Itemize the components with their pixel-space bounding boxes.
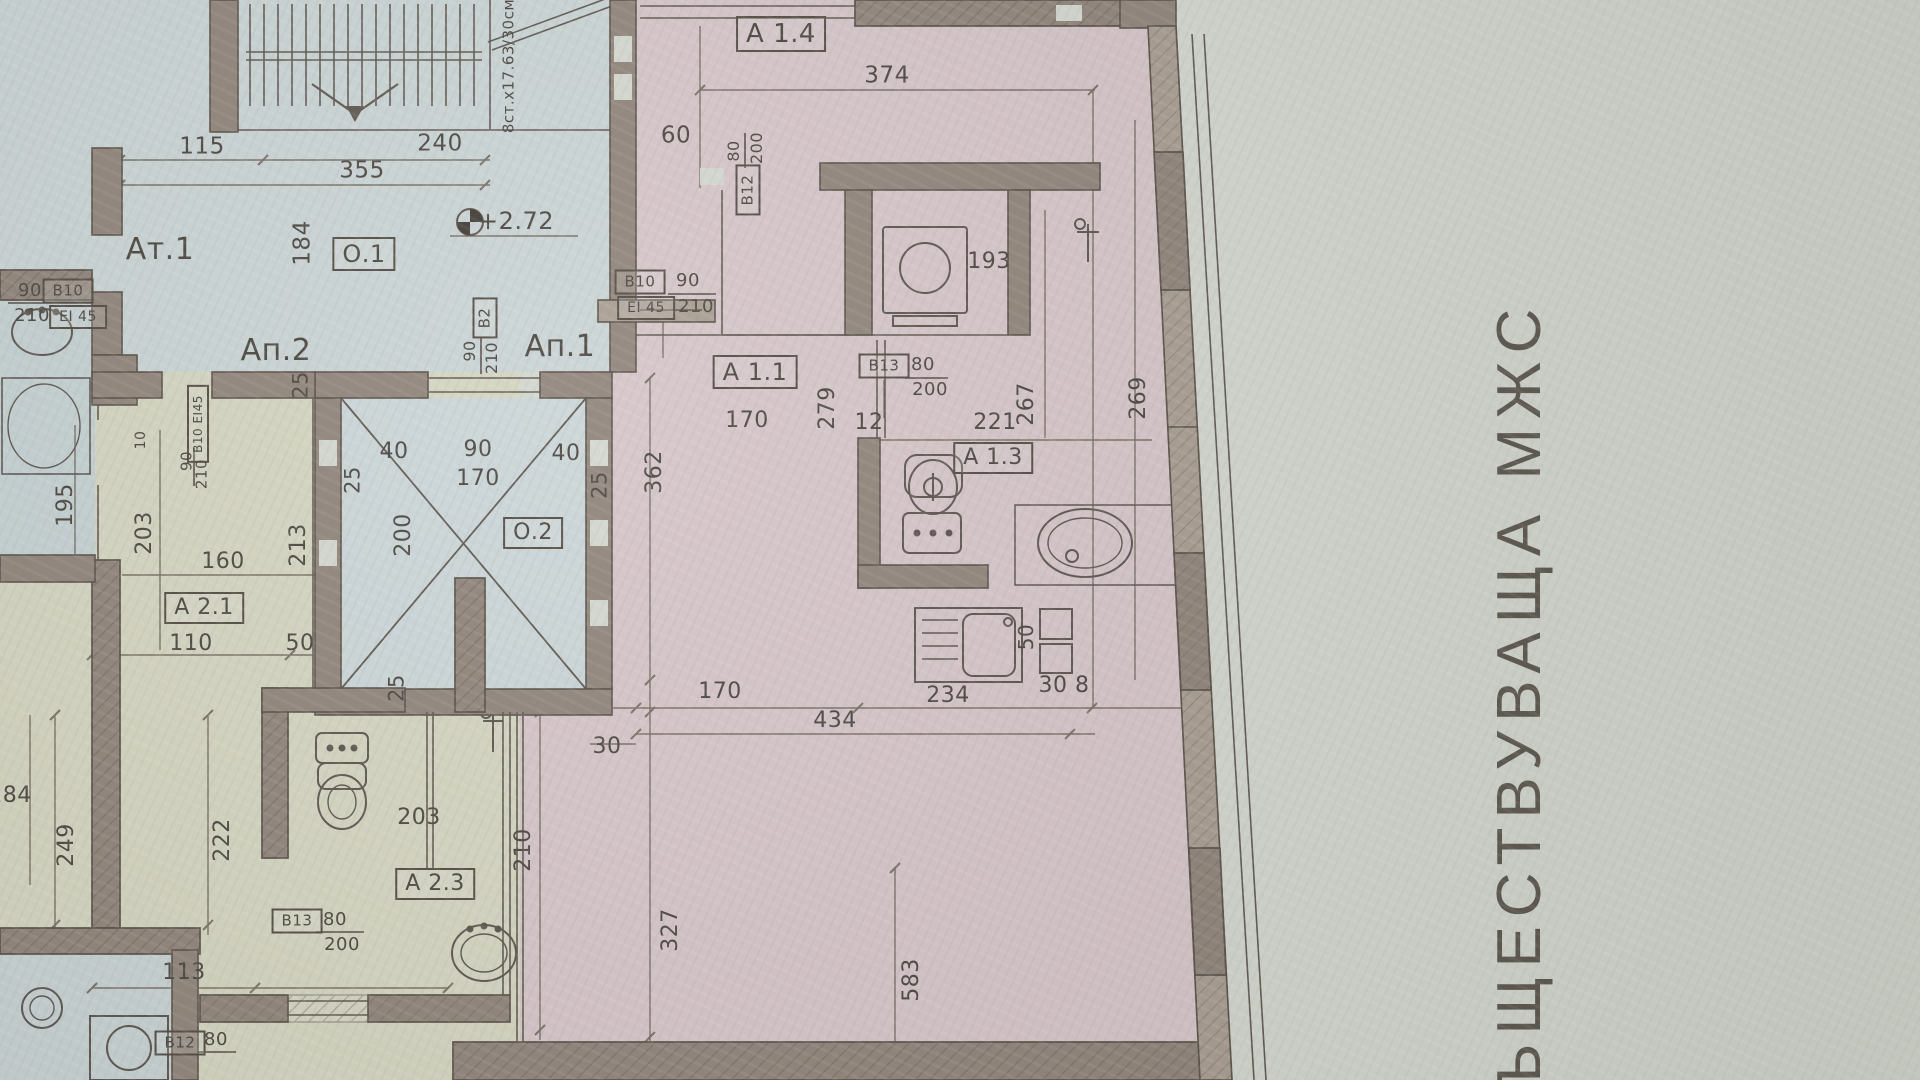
dim-184-left: 184 bbox=[0, 785, 32, 807]
spec-b12-top: В12 bbox=[736, 165, 761, 216]
dim-113: 113 bbox=[162, 962, 206, 984]
dim-115: 115 bbox=[179, 136, 224, 159]
dim-25-shaft-left: 25 bbox=[343, 466, 364, 494]
dim-170-shaft: 170 bbox=[456, 468, 500, 490]
spec-green-210: 210 bbox=[195, 459, 210, 489]
spec-b2-90: 90 bbox=[462, 340, 478, 361]
spec-b13-bot-200: 200 bbox=[324, 936, 360, 954]
dim-60: 60 bbox=[661, 125, 691, 148]
spec-b12-top-200: 200 bbox=[749, 132, 765, 164]
spec-b12-top-80: 80 bbox=[726, 140, 742, 161]
apartment-label-ap2: Ап.2 bbox=[241, 336, 312, 366]
dim-374: 374 bbox=[864, 65, 909, 88]
spec-b13-bot-80: 80 bbox=[323, 911, 347, 929]
room-label-a1-1: А 1.1 bbox=[713, 355, 798, 389]
dim-203-lower: 203 bbox=[397, 807, 441, 829]
dim-40-right: 40 bbox=[552, 443, 581, 465]
dim-110: 110 bbox=[169, 633, 213, 655]
dim-184-stair: 184 bbox=[292, 220, 315, 265]
dim-222: 222 bbox=[212, 818, 234, 862]
dim-434: 434 bbox=[813, 710, 857, 732]
dim-362: 362 bbox=[644, 450, 666, 494]
annotation-layer: О.1О.2А 1.4А 1.1А 1.3А 2.1А 2.3Ат.1Ап.2А… bbox=[0, 0, 1920, 1080]
dim-12: 12 bbox=[855, 412, 884, 434]
dim-50-a21: 50 bbox=[286, 633, 315, 655]
dim-25-shaft-bottom: 25 bbox=[387, 674, 408, 702]
dim-200-shaft: 200 bbox=[393, 513, 415, 557]
dim-327: 327 bbox=[660, 908, 682, 952]
dim-221: 221 bbox=[973, 412, 1017, 434]
dim-234: 234 bbox=[926, 685, 970, 707]
dim-210-lower: 210 bbox=[513, 828, 535, 872]
dim-10: 10 bbox=[134, 431, 148, 450]
apartment-label-ap1: Ап.1 bbox=[525, 332, 596, 362]
spec-b13-bot: В13 bbox=[272, 909, 323, 934]
dim-30: 30 bbox=[593, 736, 622, 758]
spec-b13-top-80: 80 bbox=[911, 356, 935, 374]
dim-25-shaft-right: 25 bbox=[590, 471, 611, 499]
spec-b12-bot: В12 bbox=[155, 1031, 206, 1056]
spec-b13-top-200: 200 bbox=[912, 381, 948, 399]
stair-note: 8ст.х17.63/30см bbox=[502, 0, 517, 133]
dim-170-a11: 170 bbox=[725, 410, 769, 432]
spec-a11-ei45: EI 45 bbox=[617, 296, 675, 320]
dim-195: 195 bbox=[55, 483, 77, 527]
dim-203-upper: 203 bbox=[134, 511, 156, 555]
dim-583: 583 bbox=[901, 958, 923, 1002]
dim-40-left: 40 bbox=[380, 441, 409, 463]
room-label-a1-4: А 1.4 bbox=[736, 16, 826, 52]
spec-at1-90: 90 bbox=[18, 282, 42, 300]
dim-170-lower: 170 bbox=[698, 681, 742, 703]
dim-355: 355 bbox=[339, 160, 384, 183]
spec-a11-210: 210 bbox=[678, 298, 714, 316]
existing-building-title: СЪЩЕСТВУВАЩА МЖС bbox=[1489, 300, 1551, 1080]
spec-at1-b10: В10 bbox=[43, 279, 94, 304]
dim-90-shaft: 90 bbox=[464, 439, 493, 461]
dim-267: 267 bbox=[1016, 382, 1038, 426]
spec-b2-210: 210 bbox=[484, 342, 500, 374]
room-label-a2-3: А 2.3 bbox=[395, 868, 475, 900]
spec-b13-top: В13 bbox=[859, 354, 910, 379]
dim-50-sink: 50 bbox=[1016, 624, 1036, 650]
dim-279: 279 bbox=[817, 386, 839, 430]
dim-160: 160 bbox=[201, 551, 245, 573]
floor-plan-scan: О.1О.2А 1.4А 1.1А 1.3А 2.1А 2.3Ат.1Ап.2А… bbox=[0, 0, 1920, 1080]
dim-193: 193 bbox=[967, 251, 1011, 273]
dim-213: 213 bbox=[288, 523, 310, 567]
dim-249: 249 bbox=[56, 823, 78, 867]
dim-269: 269 bbox=[1128, 376, 1150, 420]
spec-at1-ei45: EI 45 bbox=[49, 305, 107, 329]
room-label-a2-1: А 2.1 bbox=[164, 592, 244, 624]
elevation-mark: +2.72 bbox=[478, 209, 554, 233]
spec-b2: В2 bbox=[473, 298, 498, 339]
spec-a11-90: 90 bbox=[676, 272, 700, 290]
apartment-label-at1: Ат.1 bbox=[126, 235, 195, 265]
room-label-a1-3: А 1.3 bbox=[953, 442, 1033, 474]
dim-25-shaft-top: 25 bbox=[291, 371, 312, 399]
spec-b12-bot-80: 80 bbox=[204, 1031, 228, 1049]
spec-a11-b10: В10 bbox=[615, 270, 666, 295]
dim-30-8: 30 8 bbox=[1039, 675, 1090, 697]
room-label-o1: О.1 bbox=[332, 237, 395, 271]
spec-at1-210: 210 bbox=[14, 307, 50, 325]
room-label-o2: О.2 bbox=[503, 517, 563, 549]
dim-240: 240 bbox=[417, 133, 462, 156]
